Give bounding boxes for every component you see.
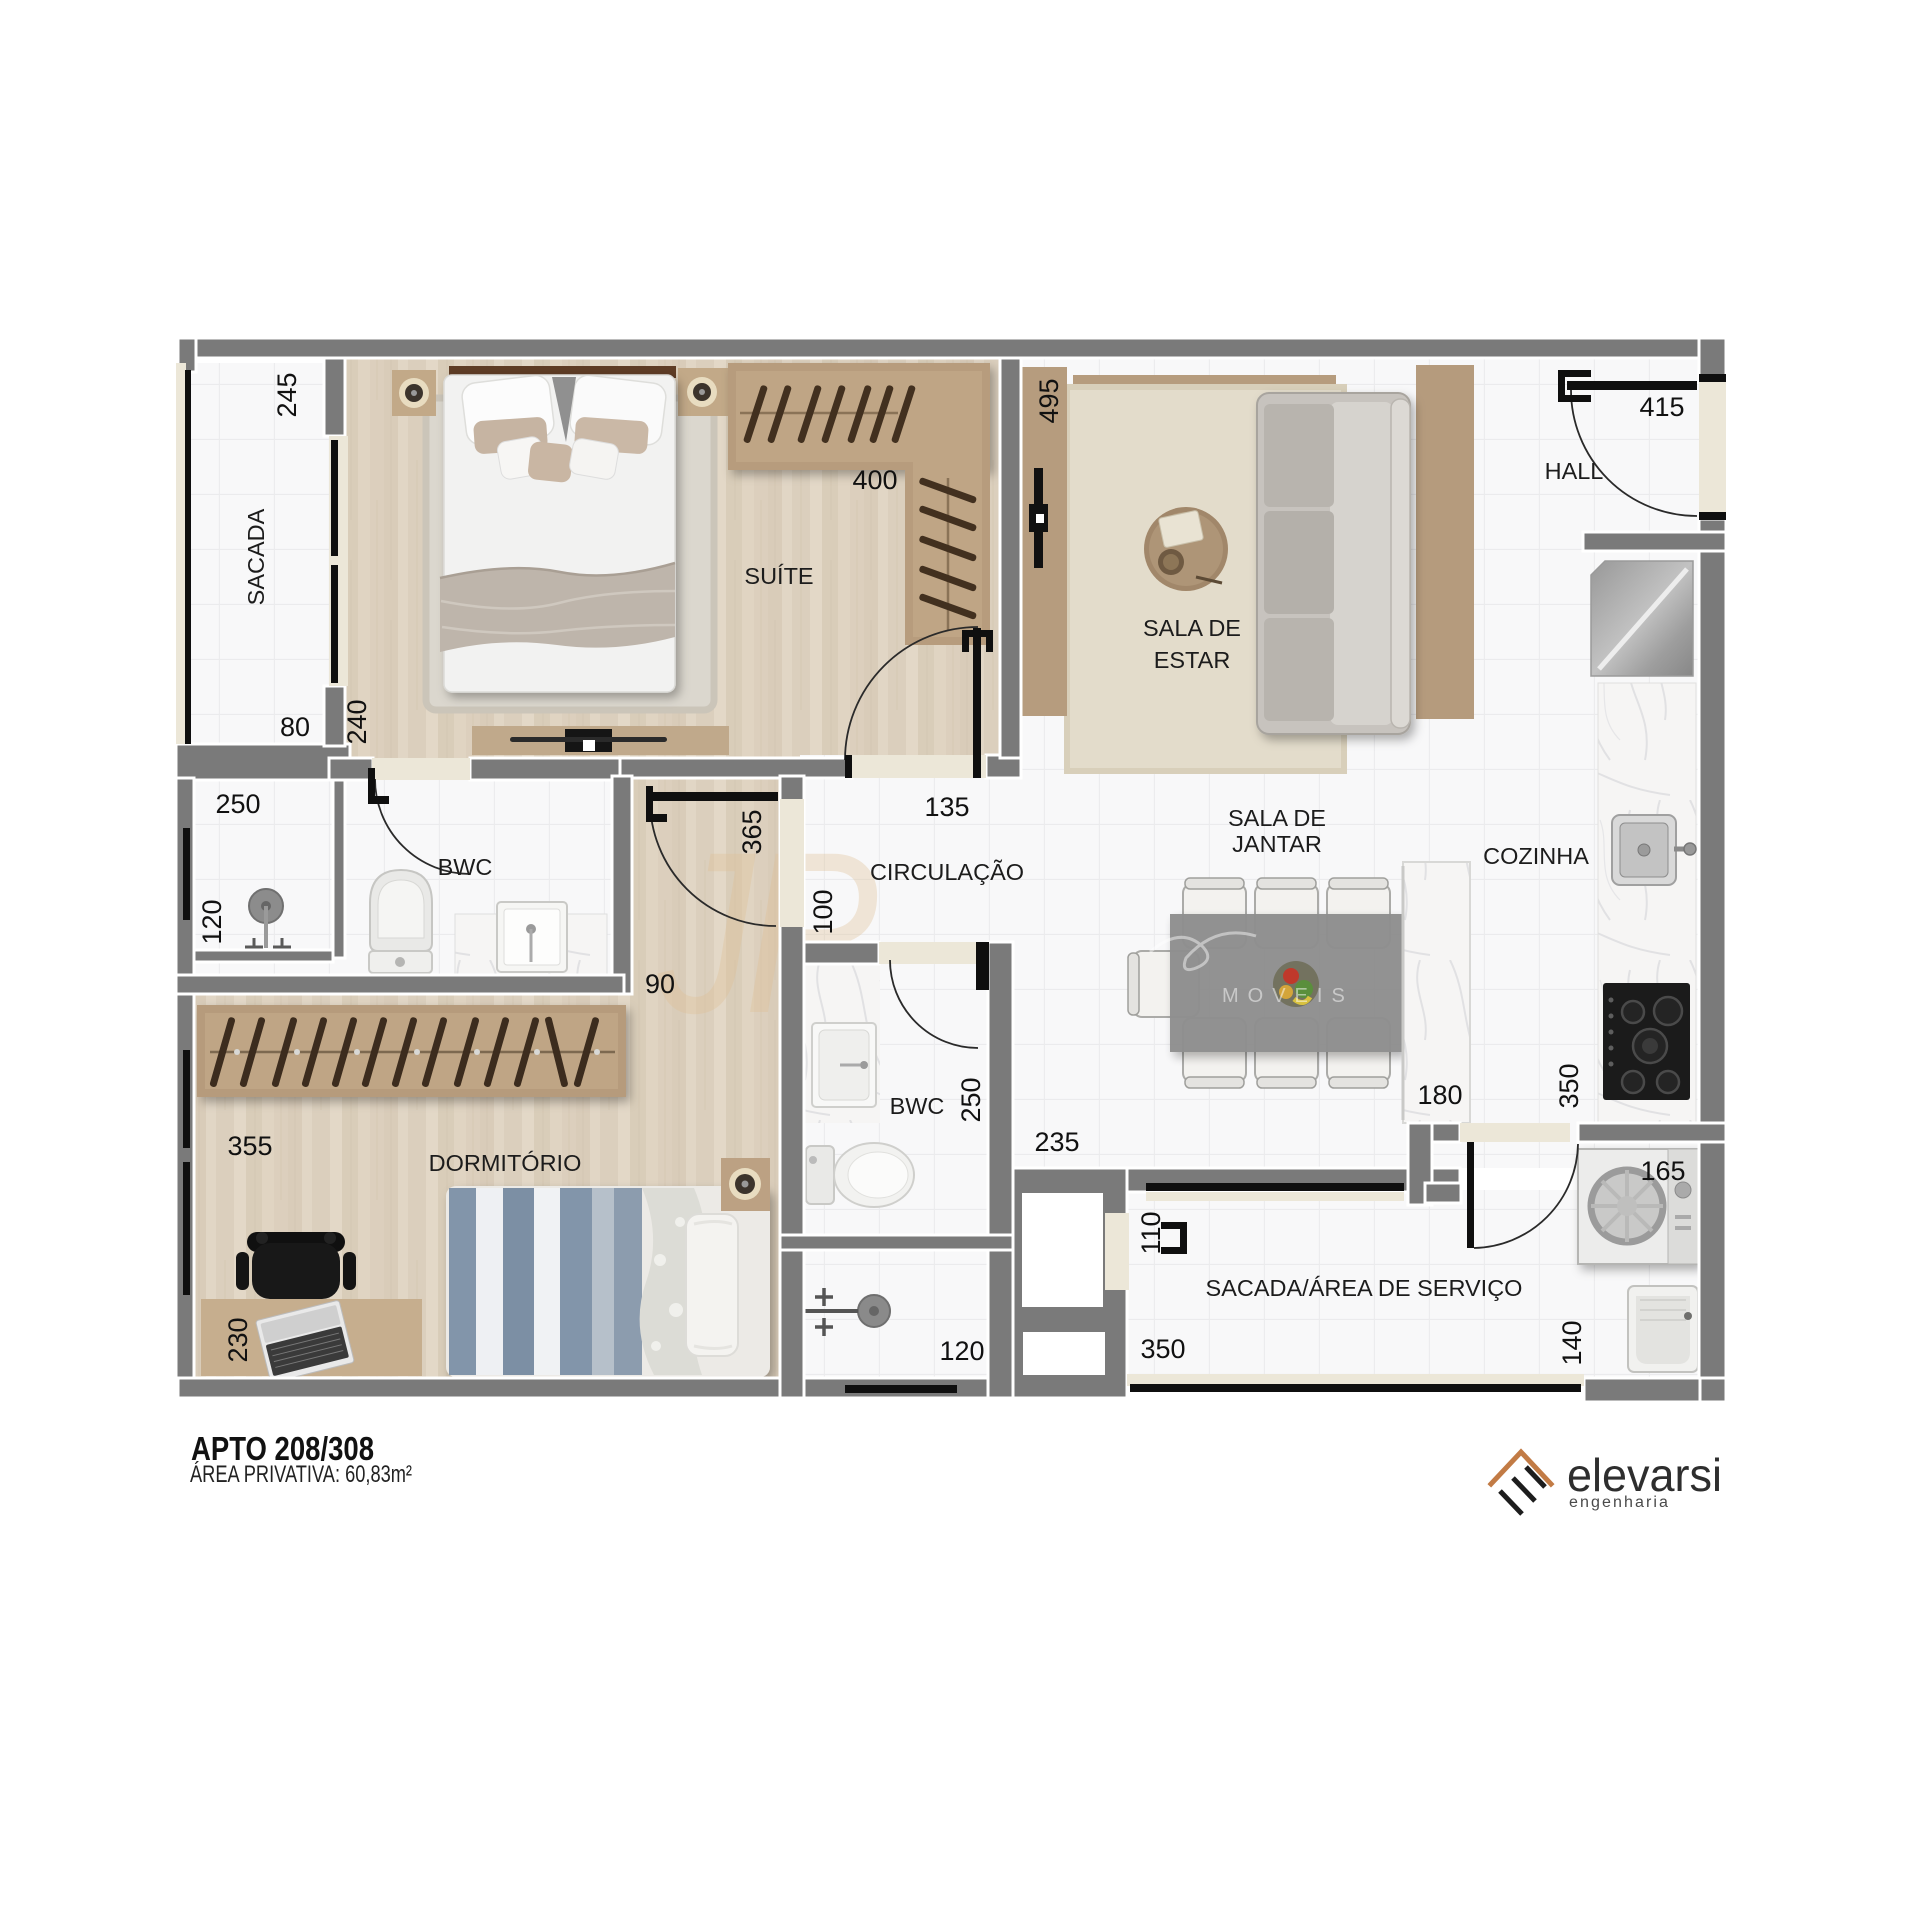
svg-text:BWC: BWC [890,1093,945,1119]
svg-text:235: 235 [1034,1127,1079,1157]
svg-text:JANTAR: JANTAR [1232,831,1322,857]
svg-text:CIRCULAÇÃO: CIRCULAÇÃO [870,859,1024,885]
svg-text:140: 140 [1557,1320,1587,1365]
svg-text:245: 245 [272,372,302,417]
svg-text:250: 250 [956,1077,986,1122]
svg-text:355: 355 [227,1131,272,1161]
svg-text:COZINHA: COZINHA [1483,843,1589,869]
svg-text:495: 495 [1034,378,1064,423]
svg-text:SACADA: SACADA [243,508,269,605]
svg-text:230: 230 [223,1317,253,1362]
svg-text:350: 350 [1140,1334,1185,1364]
svg-text:250: 250 [215,789,260,819]
svg-text:165: 165 [1640,1156,1685,1186]
svg-text:engenharia: engenharia [1569,1494,1670,1511]
svg-text:SACADA/ÁREA DE SERVIÇO: SACADA/ÁREA DE SERVIÇO [1206,1275,1523,1301]
svg-text:415: 415 [1639,392,1684,422]
svg-text:120: 120 [197,899,227,944]
svg-text:100: 100 [808,889,838,934]
svg-text:DORMITÓRIO: DORMITÓRIO [429,1150,582,1176]
svg-text:350: 350 [1554,1063,1584,1108]
svg-text:90: 90 [645,969,675,999]
svg-text:110: 110 [1136,1211,1166,1254]
svg-text:400: 400 [852,465,897,495]
svg-text:HALL: HALL [1545,458,1604,484]
svg-text:80: 80 [280,712,310,742]
svg-text:BWC: BWC [438,854,493,880]
svg-text:MOVEIS: MOVEIS [1222,985,1354,1007]
svg-text:SUÍTE: SUÍTE [744,563,813,589]
svg-text:180: 180 [1417,1080,1462,1110]
svg-text:SALA DE: SALA DE [1143,615,1241,641]
svg-text:120: 120 [939,1336,984,1366]
svg-text:ESTAR: ESTAR [1154,647,1231,673]
svg-text:ÁREA PRIVATIVA: 60,83m²: ÁREA PRIVATIVA: 60,83m² [190,1461,412,1488]
svg-text:240: 240 [342,699,372,744]
svg-text:365: 365 [737,809,767,854]
svg-text:SALA DE: SALA DE [1228,805,1326,831]
svg-text:135: 135 [924,792,969,822]
